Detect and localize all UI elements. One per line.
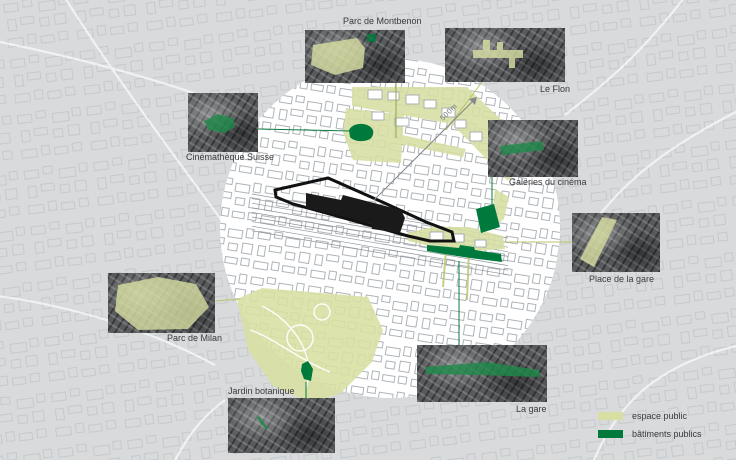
satellite-le-flon [445,28,565,82]
legend-swatch-espace-public [598,412,623,420]
satellite-jardin-botanique [228,398,335,453]
overlay-jardin-botanique [228,398,335,453]
site-analysis-diagram: 500m [0,0,736,460]
label-cinematheque-suisse: Cinémathèque Suisse [186,152,274,162]
legend-item-espace-public: espace public [598,407,702,425]
building-cinematheque [349,124,373,141]
overlay-place-de-la-gare [572,213,660,272]
legend-label-batiments-publics: bâtiments publics [632,429,702,439]
overlay-parc-de-milan [108,273,215,333]
label-place-de-la-gare: Place de la gare [589,274,654,284]
overlay-le-flon [445,28,565,82]
label-jardin-botanique: Jardin botanique [228,386,295,396]
label-galeries-du-cinema: Galeries du cinéma [509,177,587,187]
label-la-gare: La gare [516,404,547,414]
legend-item-batiments-publics: bâtiments publics [598,425,702,443]
legend-label-espace-public: espace public [632,411,687,421]
satellite-cinematheque-suisse [188,93,258,152]
legend: espace public bâtiments publics [598,407,702,443]
satellite-galeries-du-cinema [488,120,578,177]
overlay-la-gare [417,345,547,402]
label-parc-de-milan: Parc de Milan [167,333,222,343]
satellite-parc-de-milan [108,273,215,333]
satellite-place-de-la-gare [572,213,660,272]
label-parc-de-montbenon: Parc de Montbenon [343,16,422,26]
satellite-la-gare [417,345,547,402]
satellite-parc-de-montbenon [305,30,405,83]
overlay-parc-de-montbenon [305,30,405,83]
legend-swatch-batiments-publics [598,430,623,438]
label-le-flon: Le Flon [540,84,570,94]
overlay-galeries [488,120,578,177]
overlay-cinematheque [188,93,258,152]
